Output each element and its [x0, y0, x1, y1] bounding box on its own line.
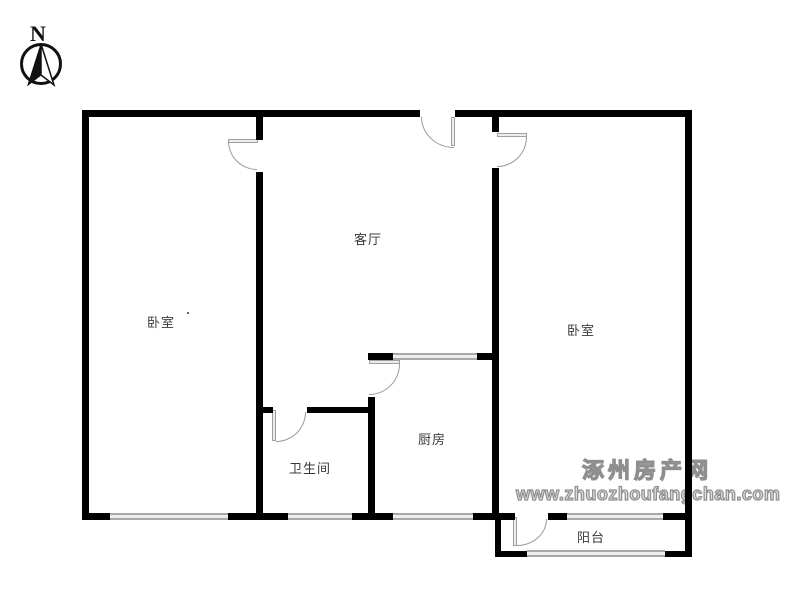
wall-bathroom-top-right — [307, 407, 374, 413]
wall-kitchen-top-left — [368, 353, 393, 360]
wall-right-outer — [685, 110, 692, 557]
wall-bathroom-top-left — [256, 407, 273, 413]
wall-kitchen-top-right — [477, 353, 492, 360]
window-kitchen-bottom — [393, 513, 473, 520]
door-arc-balcony — [517, 519, 547, 546]
door-arc-bedroom-right — [497, 137, 527, 167]
wall-bedroom-left-divider-lower — [256, 172, 263, 513]
window-balcony — [527, 550, 665, 557]
room-label-kitchen: 厨房 — [418, 429, 446, 448]
window-kitchen-top — [393, 353, 477, 360]
wall-bottom-segment-1 — [82, 513, 110, 520]
room-label-bedroom-left: 卧室 — [147, 312, 175, 331]
room-label-bathroom: 卫生间 — [289, 458, 331, 477]
floor-plan: N — [0, 0, 800, 600]
watermark-site-name: 涿州房产网 — [516, 458, 778, 484]
wall-bottom-segment-5 — [548, 513, 567, 520]
window-bedroom-left — [110, 513, 228, 520]
watermark-site-url: www.zhuozhoufangchan.com — [516, 484, 778, 504]
door-arc-bedroom-left — [228, 141, 257, 170]
window-bedroom-right — [567, 513, 663, 520]
wall-balcony-bottom-left — [495, 551, 527, 557]
compass-arrow-icon — [25, 43, 57, 87]
room-label-balcony: 阳台 — [577, 527, 605, 546]
room-label-living-room: 客厅 — [354, 229, 382, 248]
wall-bottom-segment-6 — [663, 513, 692, 520]
room-label-bedroom-right: 卧室 — [567, 320, 595, 339]
wall-bedroom-left-divider-upper — [256, 117, 263, 140]
window-bathroom — [288, 513, 352, 520]
wall-top-left-segment — [82, 110, 420, 117]
wall-bottom-segment-3 — [352, 513, 393, 520]
door-arc-entry — [421, 117, 454, 148]
wall-bedroom-right-divider-lower — [492, 168, 499, 513]
door-arc-bathroom — [276, 412, 306, 442]
small-dot-mark — [187, 312, 189, 314]
watermark: 涿州房产网 www.zhuozhoufangchan.com — [516, 458, 778, 504]
wall-left-outer — [82, 110, 89, 520]
wall-bottom-segment-2 — [228, 513, 288, 520]
wall-top-right-segment — [455, 110, 692, 117]
wall-bottom-segment-4 — [473, 513, 515, 520]
wall-balcony-bottom-right — [665, 551, 692, 557]
door-arc-kitchen — [369, 364, 400, 395]
wall-bedroom-right-divider-upper — [492, 117, 499, 132]
wall-kitchen-left — [368, 397, 375, 513]
